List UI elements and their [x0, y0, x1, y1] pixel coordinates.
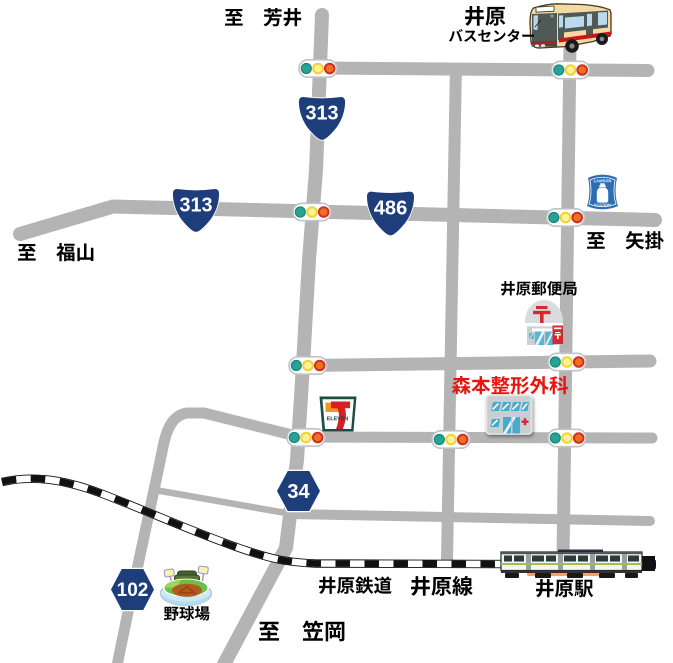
svg-text:486: 486 — [374, 197, 408, 219]
svg-text:34: 34 — [287, 481, 310, 503]
svg-text:313: 313 — [180, 194, 213, 216]
svg-text:102: 102 — [117, 580, 149, 601]
svg-text:313: 313 — [306, 102, 339, 124]
